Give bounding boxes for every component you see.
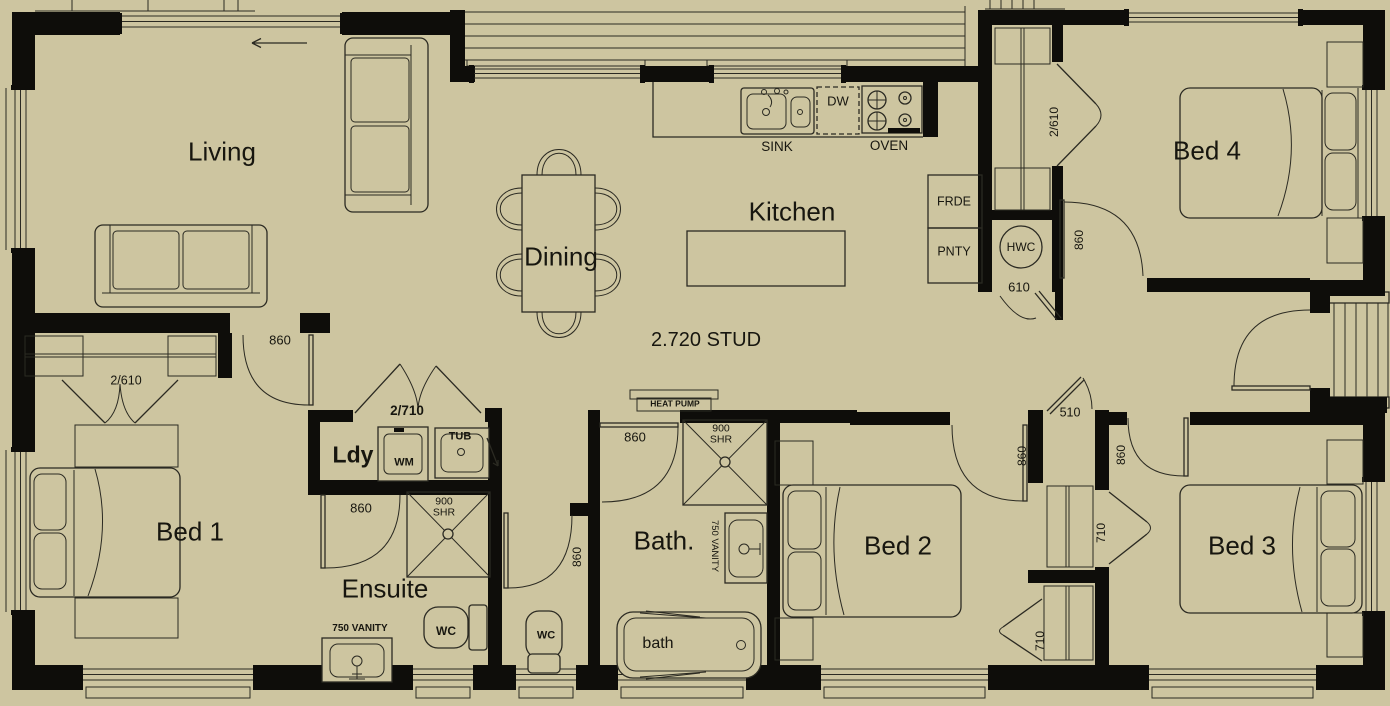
vanity-ensuite: [322, 638, 392, 682]
laundry-doors-label: 2/710: [390, 404, 424, 418]
floor-plan-drawing: [0, 0, 1390, 706]
room-label-bathroom: Bath.: [634, 528, 695, 555]
sink-unit: [741, 88, 814, 134]
fridge-label: FRDE: [937, 196, 971, 209]
vanity-bath-label: 750 VANITY: [709, 520, 719, 572]
room-label-bed3: Bed 3: [1208, 533, 1276, 560]
sofa-vertical: [345, 38, 428, 212]
stud-height-label: 2.720 STUD: [651, 330, 761, 350]
heat-pump-label: HEAT PUMP: [650, 400, 699, 409]
room-label-dining: Dining: [524, 244, 598, 271]
hwc-label: HWC: [1007, 241, 1036, 253]
linen-doors-label: 2/610: [1048, 107, 1060, 137]
room-label-bed2: Bed 2: [864, 533, 932, 560]
shower-bath-label: 900SHR: [710, 423, 732, 444]
laundry-fixtures: [378, 427, 498, 481]
living-furniture: [95, 38, 428, 307]
toilet-separate-label: WC: [537, 630, 555, 641]
bathtub-label: bath: [642, 636, 673, 652]
room-label-laundry: Ldy: [333, 443, 374, 466]
top-right-structure: [985, 0, 1065, 9]
room-label-bed4: Bed 4: [1173, 138, 1241, 165]
bed4-door-label: 860: [1073, 230, 1085, 250]
bed2-wardrobe-label: 710: [1034, 631, 1046, 651]
ensuite-door-label: 860: [350, 501, 372, 514]
room-label-living: Living: [188, 139, 256, 166]
hwc-width-label: 610: [1008, 280, 1030, 293]
entry-arrow: [252, 39, 307, 48]
bed3-door: [1128, 418, 1188, 476]
shower-ensuite-label: 900SHR: [433, 496, 455, 517]
room-label-ensuite: Ensuite: [342, 576, 429, 603]
vanity-bath: [725, 513, 767, 583]
top-left-structure: [35, 0, 255, 11]
entry-steps: [1323, 292, 1389, 408]
sofa-horizontal: [95, 225, 267, 307]
oven-label: OVEN: [870, 139, 908, 153]
laundry-tub-label: TUB: [449, 431, 472, 442]
toilet-ensuite-label: WC: [436, 625, 456, 637]
bath-door-label: 860: [624, 430, 646, 443]
wc-door-label: 860: [571, 547, 583, 567]
linen-bifold-doors: [1057, 64, 1101, 166]
wc-door: [504, 513, 572, 588]
floor-plan: Living Dining Kitchen 2.720 STUD SINK DW…: [0, 0, 1390, 706]
vanity-ensuite-label: 750 VANITY: [332, 624, 387, 634]
bathtub: [617, 611, 761, 679]
bed1-door-label: 860: [269, 333, 291, 346]
pantry-label: PNTY: [937, 246, 970, 259]
dishwasher-label: DW: [827, 94, 849, 107]
room-label-bed1: Bed 1: [156, 519, 224, 546]
bed3-wardrobe-label: 710: [1095, 523, 1107, 543]
hall-cupboard-label: 510: [1060, 407, 1081, 420]
bed3-door-label: 860: [1115, 445, 1127, 465]
bed1-wardrobe-label: 2/610: [110, 375, 141, 388]
entry-door: [1232, 310, 1310, 390]
hwc-door: [1000, 291, 1061, 320]
cooktop: [862, 86, 922, 133]
bed3-wardrobe-door: [1109, 492, 1151, 564]
bed2-door-label: 860: [1016, 446, 1028, 466]
washing-machine-label: WM: [394, 457, 414, 468]
wc-fixtures: [526, 611, 562, 673]
room-label-kitchen: Kitchen: [749, 199, 836, 226]
sink-label: SINK: [761, 140, 793, 154]
deck: [463, 6, 965, 66]
